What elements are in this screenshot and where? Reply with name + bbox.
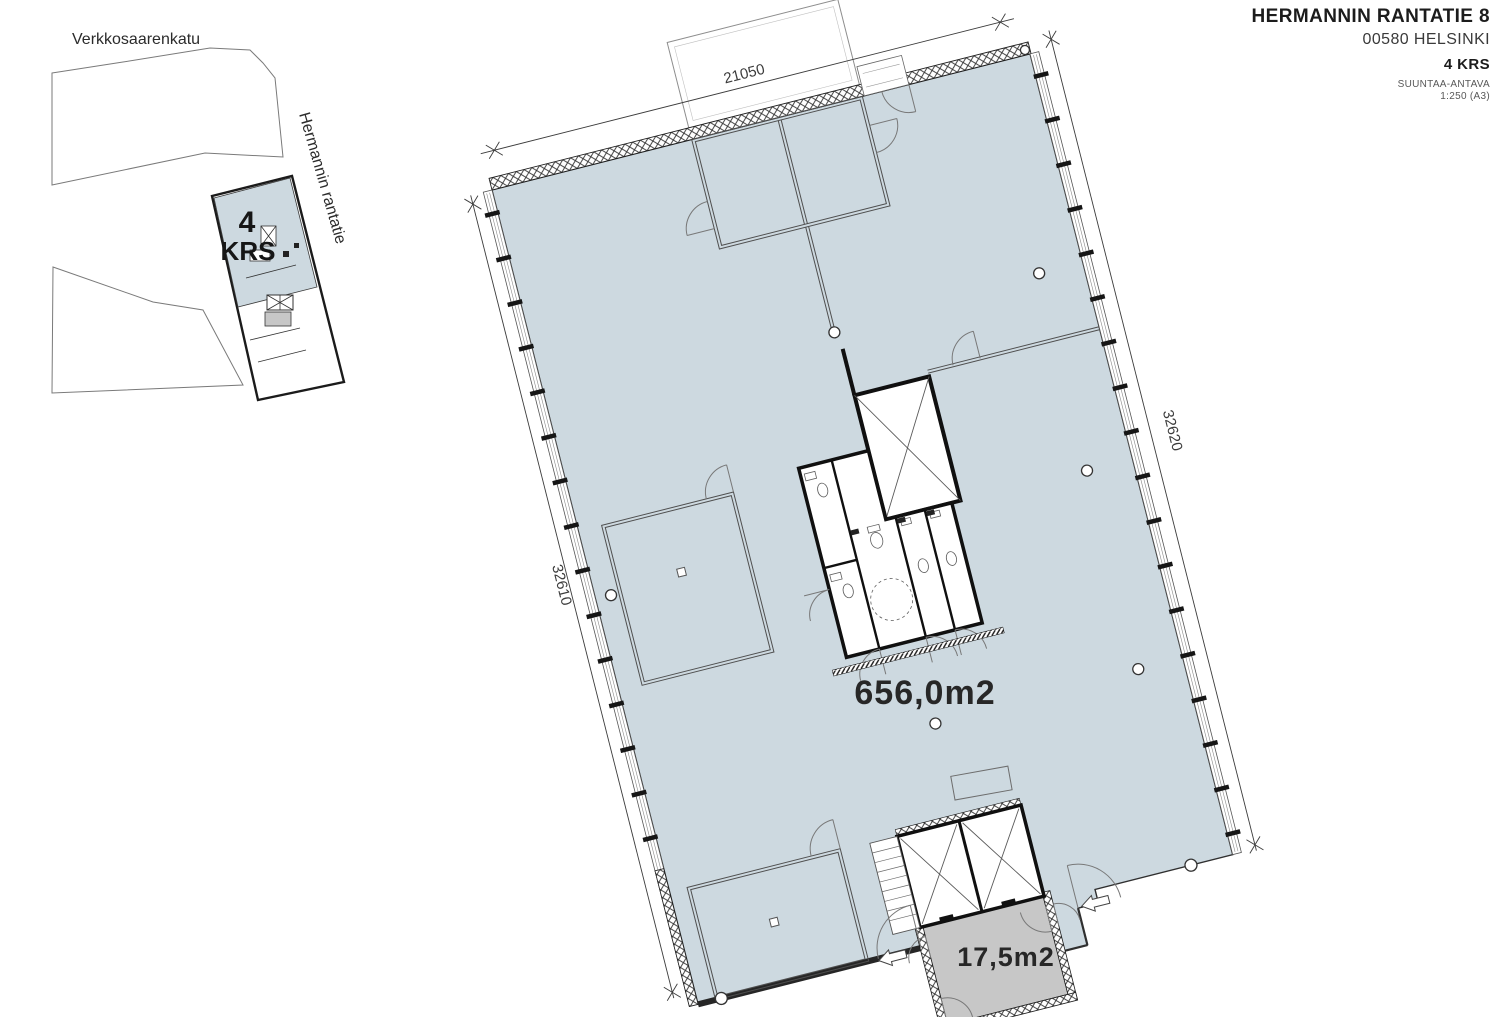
city-block-upper xyxy=(52,48,283,185)
project-floor: 4 KRS xyxy=(1252,56,1490,73)
project-note: SUUNTAA-ANTAVA xyxy=(1252,79,1490,90)
project-scale: 1:250 (A3) xyxy=(1252,91,1490,102)
city-block-lower xyxy=(52,267,243,393)
site-map-gray-room xyxy=(265,312,291,326)
site-map-floor-krs: KRS xyxy=(221,236,276,266)
project-address: HERMANNIN RANTATIE 8 xyxy=(1252,6,1490,28)
area-label-secondary: 17,5m2 xyxy=(957,942,1055,972)
dim-right-value: 32620 xyxy=(1159,408,1186,453)
dim-left-value: 32610 xyxy=(548,563,575,608)
site-map-floor-number: 4 xyxy=(239,206,256,239)
main-plan: 21050 32620 32610 xyxy=(431,0,1311,1017)
title-block: HERMANNIN RANTATIE 8 00580 HELSINKI 4 KR… xyxy=(1252,6,1490,102)
floor-plan-drawing: Verkkosaarenkatu Hermannin rantatie 4 KR… xyxy=(0,0,1500,1017)
project-postal-city: 00580 HELSINKI xyxy=(1252,31,1490,49)
street-label-top: Verkkosaarenkatu xyxy=(72,31,200,48)
site-map: Verkkosaarenkatu Hermannin rantatie 4 KR… xyxy=(52,31,349,400)
area-label-main: 656,0m2 xyxy=(854,674,995,712)
